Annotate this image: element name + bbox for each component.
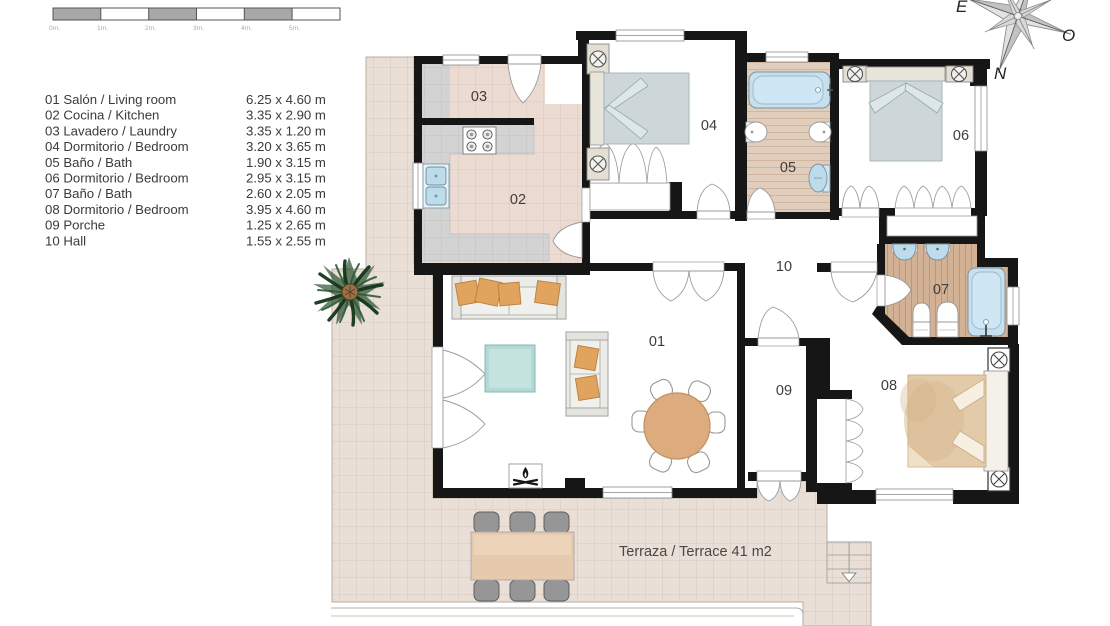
svg-text:E: E bbox=[956, 0, 968, 16]
svg-text:08 Dormitorio / Bedroom: 08 Dormitorio / Bedroom bbox=[45, 202, 189, 217]
svg-text:07: 07 bbox=[933, 282, 949, 298]
svg-text:1.90 x 3.15 m: 1.90 x 3.15 m bbox=[246, 155, 326, 170]
svg-text:01: 01 bbox=[649, 334, 665, 350]
svg-text:3.20 x 3.65 m: 3.20 x 3.65 m bbox=[246, 139, 326, 154]
svg-text:05: 05 bbox=[780, 160, 796, 176]
svg-text:1.25 x 2.65 m: 1.25 x 2.65 m bbox=[246, 218, 326, 233]
svg-text:3.35 x 1.20 m: 3.35 x 1.20 m bbox=[246, 123, 326, 138]
svg-text:2m.: 2m. bbox=[145, 25, 156, 32]
svg-text:0m.: 0m. bbox=[49, 25, 60, 32]
svg-text:5m.: 5m. bbox=[289, 25, 300, 32]
svg-text:09 Porche: 09 Porche bbox=[45, 218, 105, 233]
svg-text:4m.: 4m. bbox=[241, 25, 252, 32]
svg-text:08: 08 bbox=[881, 378, 897, 394]
svg-text:3.35 x 2.90 m: 3.35 x 2.90 m bbox=[246, 108, 326, 123]
svg-text:1.55 x 2.55 m: 1.55 x 2.55 m bbox=[246, 233, 326, 248]
svg-text:3.95 x 4.60 m: 3.95 x 4.60 m bbox=[246, 202, 326, 217]
svg-text:03: 03 bbox=[471, 89, 487, 105]
svg-text:O: O bbox=[1062, 26, 1075, 45]
svg-text:10 Hall: 10 Hall bbox=[45, 233, 86, 248]
svg-text:03 Lavadero / Laundry: 03 Lavadero / Laundry bbox=[45, 123, 177, 138]
svg-text:04 Dormitorio / Bedroom: 04 Dormitorio / Bedroom bbox=[45, 139, 189, 154]
svg-text:2.95 x 3.15 m: 2.95 x 3.15 m bbox=[246, 171, 326, 186]
svg-text:01 Salón / Living room: 01 Salón / Living room bbox=[45, 92, 176, 107]
svg-text:05 Baño / Bath: 05 Baño / Bath bbox=[45, 155, 132, 170]
svg-text:02: 02 bbox=[510, 192, 526, 208]
svg-text:06 Dormitorio / Bedroom: 06 Dormitorio / Bedroom bbox=[45, 171, 189, 186]
svg-text:09: 09 bbox=[776, 383, 792, 399]
svg-text:04: 04 bbox=[701, 118, 717, 134]
svg-text:1m.: 1m. bbox=[97, 25, 108, 32]
svg-text:2.60 x 2.05 m: 2.60 x 2.05 m bbox=[246, 186, 326, 201]
svg-text:6.25 x 4.60 m: 6.25 x 4.60 m bbox=[246, 92, 326, 107]
svg-text:07 Baño / Bath: 07 Baño / Bath bbox=[45, 186, 132, 201]
svg-text:06: 06 bbox=[953, 128, 969, 144]
svg-text:3m.: 3m. bbox=[193, 25, 204, 32]
svg-text:10: 10 bbox=[776, 259, 792, 275]
svg-text:02 Cocina / Kitchen: 02 Cocina / Kitchen bbox=[45, 108, 159, 123]
svg-text:N: N bbox=[994, 64, 1007, 83]
svg-text:Terraza / Terrace 41 m2: Terraza / Terrace 41 m2 bbox=[619, 544, 772, 560]
